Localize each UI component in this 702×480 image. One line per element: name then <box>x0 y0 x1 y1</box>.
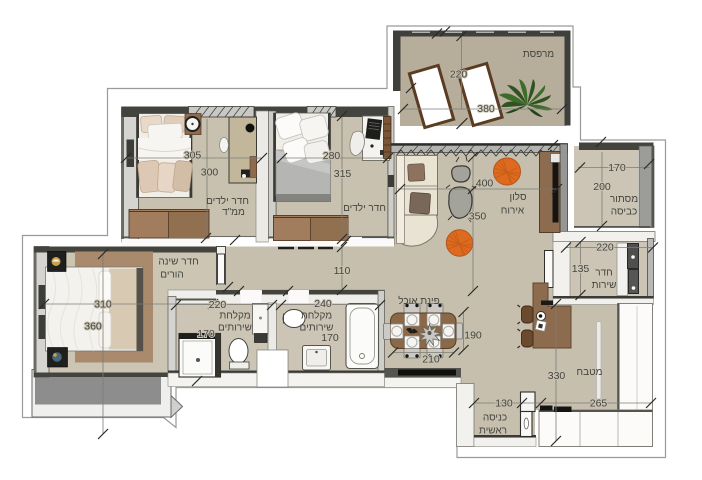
svg-text:400: 400 <box>476 178 494 190</box>
svg-text:220: 220 <box>596 242 614 254</box>
svg-text:310: 310 <box>94 299 112 311</box>
svg-text:380: 380 <box>477 103 495 115</box>
svg-text:שירות: שירות <box>592 280 617 291</box>
svg-text:190: 190 <box>464 330 482 342</box>
svg-text:חדר ילדים: חדר ילדים <box>206 195 249 207</box>
svg-text:350: 350 <box>469 211 487 223</box>
svg-text:פינת אוכל: פינת אוכל <box>398 295 440 307</box>
svg-text:300: 300 <box>201 167 219 179</box>
svg-text:מקלחת: מקלחת <box>219 310 250 322</box>
svg-text:חדר שינה: חדר שינה <box>158 257 198 268</box>
svg-text:ממ"ד: ממ"ד <box>222 207 245 218</box>
svg-text:110: 110 <box>334 265 351 277</box>
svg-text:315: 315 <box>334 168 352 180</box>
svg-text:אירוח: אירוח <box>501 206 525 217</box>
svg-text:220: 220 <box>450 69 468 81</box>
svg-text:חדר ילדים: חדר ילדים <box>343 202 386 214</box>
svg-text:כניסה: כניסה <box>483 413 507 424</box>
svg-text:170: 170 <box>197 328 215 340</box>
svg-text:240: 240 <box>314 298 332 310</box>
svg-text:265: 265 <box>590 398 608 410</box>
svg-text:305: 305 <box>184 150 202 162</box>
svg-text:כביסה: כביסה <box>611 207 637 218</box>
svg-text:170: 170 <box>608 162 626 174</box>
svg-text:הורים: הורים <box>160 270 183 281</box>
svg-text:170: 170 <box>321 332 339 344</box>
svg-text:מסתור: מסתור <box>610 194 638 205</box>
svg-text:220: 220 <box>209 299 227 311</box>
svg-text:330: 330 <box>548 370 566 382</box>
svg-text:שירותים: שירותים <box>218 323 252 334</box>
svg-text:200: 200 <box>593 181 611 193</box>
svg-text:360: 360 <box>84 321 102 333</box>
svg-text:ראשית: ראשית <box>479 426 507 437</box>
svg-text:130: 130 <box>495 398 513 410</box>
svg-text:מקלחת: מקלחת <box>301 310 332 322</box>
svg-text:מטבח: מטבח <box>577 367 603 378</box>
svg-text:210: 210 <box>422 354 440 366</box>
svg-text:מרפסת: מרפסת <box>523 49 555 60</box>
svg-text:280: 280 <box>323 150 341 162</box>
svg-text:חדר: חדר <box>595 268 612 279</box>
svg-text:סלון: סלון <box>509 191 526 203</box>
svg-text:135: 135 <box>572 263 590 275</box>
